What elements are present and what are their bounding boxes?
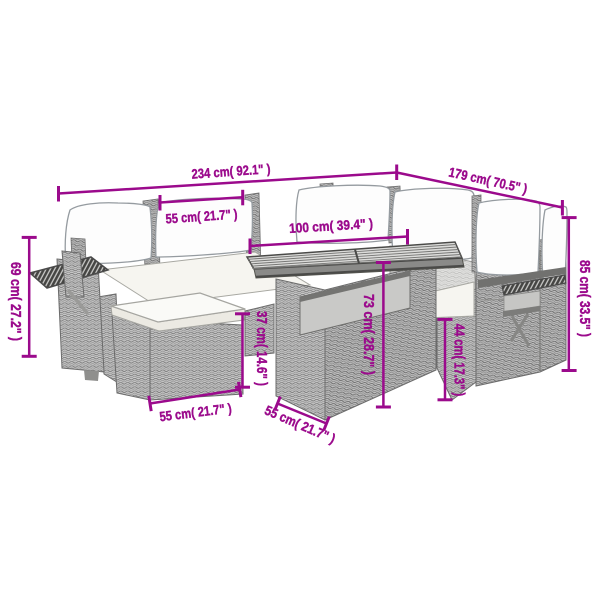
- svg-text:44 cm( 17.3" ): 44 cm( 17.3" ): [451, 324, 467, 397]
- svg-text:69 cm( 27.2" ): 69 cm( 27.2" ): [7, 262, 23, 341]
- svg-text:73 cm( 28.7" ): 73 cm( 28.7" ): [360, 294, 376, 375]
- svg-text:85 cm( 33.5" ): 85 cm( 33.5" ): [576, 260, 592, 337]
- svg-text:37 cm( 14.6" ): 37 cm( 14.6" ): [253, 311, 269, 386]
